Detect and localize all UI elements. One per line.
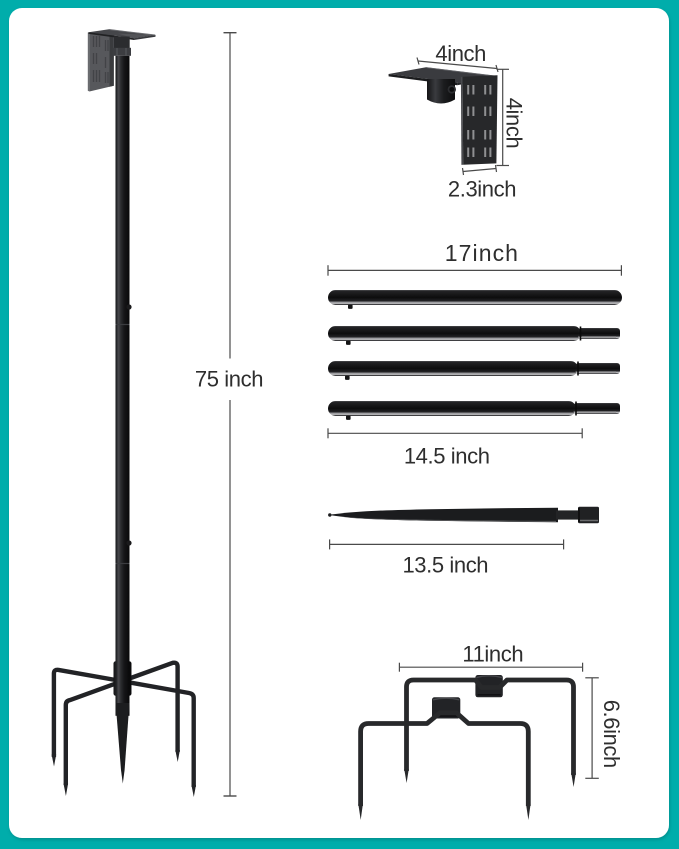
svg-text:75 inch: 75 inch	[195, 366, 263, 391]
svg-text:4inch: 4inch	[435, 41, 486, 66]
svg-text:6.6inch: 6.6inch	[599, 700, 624, 768]
svg-text:4inch: 4inch	[502, 98, 527, 149]
svg-text:14.5 inch: 14.5 inch	[404, 443, 490, 468]
svg-text:17inch: 17inch	[445, 240, 519, 266]
svg-text:13.5 inch: 13.5 inch	[402, 553, 488, 578]
svg-text:2.3inch: 2.3inch	[448, 177, 516, 202]
svg-text:11inch: 11inch	[462, 642, 523, 667]
